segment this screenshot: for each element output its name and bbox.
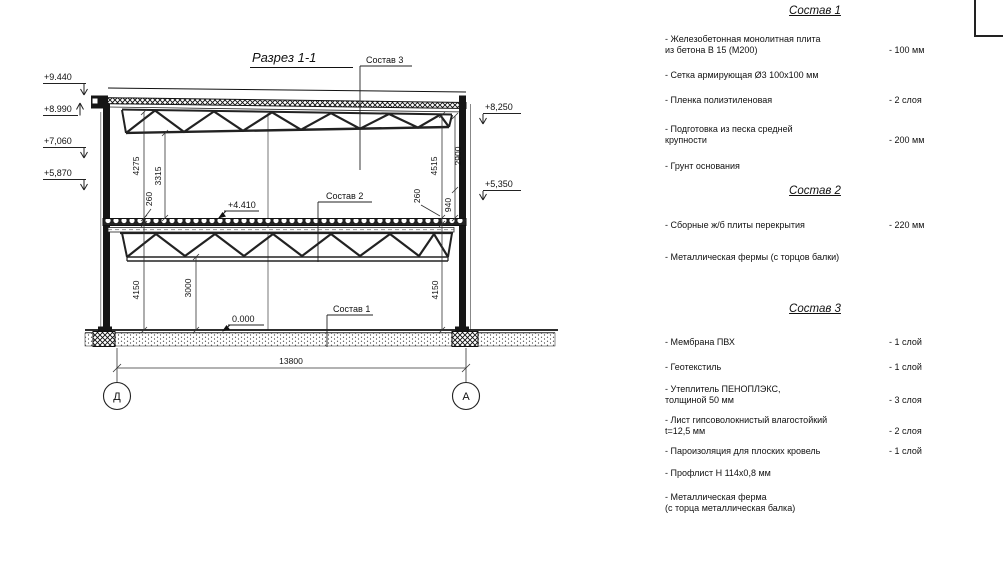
elevation-mark-4410: +4.410 bbox=[218, 200, 259, 219]
left-wall bbox=[103, 104, 110, 333]
floor-truss bbox=[120, 233, 453, 261]
svg-text:0.000: 0.000 bbox=[232, 314, 255, 324]
svg-text:+5,870: +5,870 bbox=[44, 168, 72, 178]
spec-item: - Подготовка из песка средней крупности … bbox=[665, 124, 955, 145]
spec-item: - Профлист Н 114х0,8 мм bbox=[665, 468, 955, 479]
sheet-frame-corner bbox=[974, 0, 1003, 37]
spec-item: - Сетка армирующая Ø3 100х100 мм bbox=[665, 70, 955, 81]
elevation-mark-0000: 0.000 bbox=[222, 314, 264, 332]
spec-item: - Железобетонная монолитная плита из бет… bbox=[665, 34, 955, 55]
dim-4150-left: 4150 bbox=[131, 280, 141, 299]
dim-940: 940 bbox=[443, 198, 453, 212]
dim-4515: 4515 bbox=[429, 156, 439, 175]
svg-text:+8,250: +8,250 bbox=[485, 102, 513, 112]
spec-item: - Геотекстиль - 1 слой bbox=[665, 362, 955, 373]
elevation-mark-5870: +5,870 bbox=[43, 168, 88, 190]
elevation-mark-8990: +8.990 bbox=[43, 103, 84, 116]
spec-panel: Состав 1 - Железобетонная монолитная пли… bbox=[655, 0, 965, 584]
callout-sostav2-label: Состав 2 bbox=[326, 191, 363, 201]
spec-item: - Грунт основания bbox=[665, 161, 955, 172]
axis-bubble-left: Д bbox=[104, 383, 131, 410]
foundation-left bbox=[93, 332, 115, 347]
floor-beam-band bbox=[108, 228, 454, 233]
dim-13800: 13800 bbox=[279, 356, 303, 366]
dim-line-3000 bbox=[193, 254, 199, 333]
axis-bubble-right: А bbox=[453, 383, 480, 410]
dim-260-right: 260 bbox=[412, 189, 422, 203]
dim-260-left: 260 bbox=[144, 192, 154, 206]
spec-item: - Сборные ж/б плиты перекрытия - 220 мм bbox=[665, 220, 955, 231]
svg-text:+9.440: +9.440 bbox=[44, 72, 72, 82]
axis-letter-right: А bbox=[462, 391, 470, 403]
dim-3315: 3315 bbox=[153, 166, 163, 185]
spec-heading-sostav3: Состав 3 bbox=[715, 304, 915, 315]
drawing-title: Разрез 1-1 bbox=[250, 50, 353, 68]
svg-text:+5,350: +5,350 bbox=[485, 179, 513, 189]
spec-item: - Мембрана ПВХ - 1 слой bbox=[665, 337, 955, 348]
section-drawing: Разрез 1-1 bbox=[0, 0, 640, 584]
spec-item: - Металлическая ферма (с торца металличе… bbox=[665, 492, 955, 513]
right-wall bbox=[459, 96, 466, 333]
callout-sostav1-label: Состав 1 bbox=[333, 304, 370, 314]
floor-slab-band bbox=[103, 219, 466, 226]
dim-4275: 4275 bbox=[131, 156, 141, 175]
parapet-top-line bbox=[108, 88, 466, 92]
elevation-mark-8250: +8,250 bbox=[480, 102, 522, 124]
elevation-mark-5350: +5,350 bbox=[480, 179, 522, 200]
svg-text:+4.410: +4.410 bbox=[228, 200, 256, 210]
roof-truss bbox=[122, 110, 452, 134]
spec-item: - Утеплитель ПЕНОПЛЭКС, толщиной 50 мм -… bbox=[665, 384, 955, 405]
svg-text:+8.990: +8.990 bbox=[44, 104, 72, 114]
drawing-title-text: Разрез 1-1 bbox=[252, 50, 316, 65]
elevation-mark-7060: +7,060 bbox=[43, 136, 88, 158]
ground-floor bbox=[85, 327, 558, 347]
callout-sostav3-label: Состав 3 bbox=[366, 55, 403, 65]
spec-heading-sostav2: Состав 2 bbox=[715, 186, 915, 197]
dim-4150-right: 4150 bbox=[430, 280, 440, 299]
spec-item: - Пароизоляция для плоских кровель - 1 с… bbox=[665, 446, 955, 457]
spec-item: - Металлическая фермы (с торцов балки) bbox=[665, 252, 955, 263]
dim-3000: 3000 bbox=[183, 278, 193, 297]
dim-2900: 2900 bbox=[453, 146, 463, 165]
spec-heading-sostav1: Состав 1 bbox=[715, 6, 915, 17]
foundation-right bbox=[452, 332, 478, 347]
spec-item: - Пленка полиэтиленовая - 2 слоя bbox=[665, 95, 955, 106]
drawing-sheet: Разрез 1-1 bbox=[0, 0, 1003, 584]
roof-deck bbox=[95, 98, 466, 109]
callout-sostav3 bbox=[360, 66, 412, 170]
spec-item: - Лист гипсоволокнистый влагостойкий t=1… bbox=[665, 415, 955, 436]
axis-letter-left: Д bbox=[113, 391, 121, 403]
svg-text:+7,060: +7,060 bbox=[44, 136, 72, 146]
elevation-mark-9440: +9.440 bbox=[43, 72, 88, 95]
